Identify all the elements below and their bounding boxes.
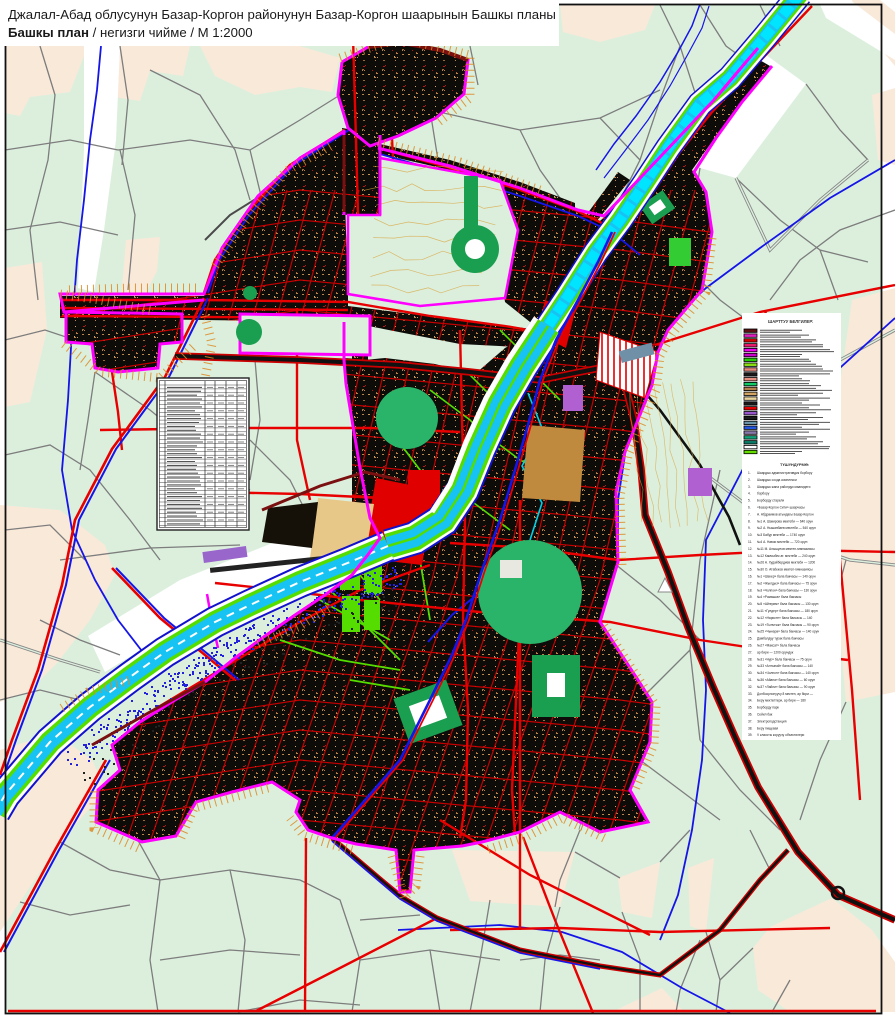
- svg-text:№1 «Шекер» бала бакчасы — 140: №1 «Шекер» бала бакчасы — 140 орун: [757, 575, 816, 579]
- svg-text:№19 «Тынчтык» бала бакчасы — 9: №19 «Тынчтык» бала бакчасы — 90 орун: [757, 623, 819, 627]
- svg-text:1.: 1.: [748, 471, 751, 475]
- svg-text:30.: 30.: [748, 671, 753, 675]
- svg-text:борбору: борбору: [757, 492, 770, 496]
- svg-text:Беру мектептери, ар бири — 180: Беру мектептери, ар бири — 180: [757, 699, 806, 703]
- svg-text:17.: 17.: [748, 581, 753, 585]
- svg-text:№25 «Чынара» бала бакчасы — 14: №25 «Чынара» бала бакчасы — 140 орун: [757, 630, 819, 634]
- svg-text:№2 «Жылдыз» бала бакчасы — 75: №2 «Жылдыз» бала бакчасы — 75 орун: [757, 581, 817, 585]
- svg-text:Шаардык административдик борбо: Шаардык административдик борбору: [757, 471, 813, 475]
- svg-text:№12 «Наристе» бала бакчасы — 1: №12 «Наристе» бала бакчасы — 140: [757, 616, 812, 620]
- svg-text:ар бири — 1200 орундук: ар бири — 1200 орундук: [757, 650, 794, 654]
- svg-text:34.: 34.: [748, 699, 753, 703]
- svg-text:33.: 33.: [748, 692, 753, 696]
- svg-text:ШАРТТУУ БЕЛГИЛЕР:: ШАРТТУУ БЕЛГИЛЕР:: [768, 319, 813, 324]
- svg-text:25.: 25.: [748, 637, 753, 641]
- svg-text:Шаардык жана райондук маанидег: Шаардык жана райондук маанидеги: [757, 485, 811, 489]
- svg-text:12.: 12.: [748, 547, 753, 551]
- svg-text:6.: 6.: [748, 506, 751, 510]
- svg-text:10.: 10.: [748, 533, 753, 537]
- svg-text:№1 А. Шакирова мектеби — 640 о: №1 А. Шакирова мектеби — 640 орун: [757, 519, 813, 523]
- svg-text:2.: 2.: [748, 478, 751, 482]
- svg-text:26.: 26.: [748, 644, 753, 648]
- svg-text:16.: 16.: [748, 575, 753, 579]
- svg-text:29.: 29.: [748, 664, 753, 668]
- svg-text:№27 «Максат» бала бакчасы: №27 «Максат» бала бакчасы: [757, 644, 801, 648]
- svg-text:3.: 3.: [748, 485, 751, 489]
- svg-text:36.: 36.: [748, 713, 753, 717]
- svg-text:Джалал-Абад облусунун Базар-Ко: Джалал-Абад облусунун Базар-Коргон район…: [8, 7, 556, 22]
- svg-text:31.: 31.: [748, 678, 753, 682]
- svg-text:11.: 11.: [748, 540, 752, 544]
- svg-text:32.: 32.: [748, 685, 753, 689]
- svg-text:№30 О. Атабеков мектеп-гимнази: №30 О. Атабеков мектеп-гимназиясы: [757, 568, 813, 572]
- svg-text:№4 «Ромашка» бала бакчасы: №4 «Ромашка» бала бакчасы: [757, 595, 802, 599]
- svg-text:№31 «Нур» бала бакчасы — 75 ор: №31 «Нур» бала бакчасы — 75 орун: [757, 657, 812, 661]
- svg-text:№2 А. Нышанбаев мектеби — 540: №2 А. Нышанбаев мектеби — 540 орун: [757, 526, 816, 530]
- svg-text:37.: 37.: [748, 719, 753, 723]
- svg-text:28.: 28.: [748, 657, 753, 661]
- svg-text:7.: 7.: [748, 512, 751, 516]
- svg-text:№36 «Айана» бала бакчасы — 60: №36 «Айана» бала бакчасы — 60 орун: [757, 678, 815, 682]
- svg-text:№3 Бабур мектеби — 1740 орун: №3 Бабур мектеби — 1740 орун: [757, 533, 805, 537]
- svg-text:А. Абдраимов атындагы Базар-Ко: А. Абдраимов атындагы Базар-Коргон: [757, 512, 814, 516]
- svg-text:Борборду старели: Борборду старели: [757, 499, 784, 503]
- svg-text:№37 «Лайли» бала бакчасы — 90: №37 «Лайли» бала бакчасы — 90 орун: [757, 685, 815, 689]
- svg-text:5.: 5.: [748, 499, 751, 503]
- svg-text:Долбоорлонуучу 8 мектеп, ар би: Долбоорлонуучу 8 мектеп, ар бири —: [757, 692, 814, 696]
- svg-text:4.: 4.: [748, 492, 751, 496]
- svg-text:8.: 8.: [748, 519, 751, 523]
- svg-text:№5 «Айгерим» бала бакчасы — 13: №5 «Айгерим» бала бакчасы — 130 орун: [757, 602, 819, 606]
- svg-text:ТҮШҮНДҮРМӨ:: ТҮШҮНДҮРМӨ:: [780, 462, 809, 467]
- svg-text:20.: 20.: [748, 602, 753, 606]
- svg-text:Беру пищевая: Беру пищевая: [757, 726, 778, 730]
- svg-text:№34 «Чолпон» бала бакчасы — 14: №34 «Чолпон» бала бакчасы — 140 орун: [757, 671, 819, 675]
- svg-text:№11 «Гулдер» бала бакчасы — 18: №11 «Гулдер» бала бакчасы — 180 орун: [757, 609, 818, 613]
- svg-text:Борборду парк: Борборду парк: [757, 706, 780, 710]
- svg-text:Шаардык соода комплекси: Шаардык соода комплекси: [757, 478, 797, 482]
- svg-text:№26 А. Худайбердиев мектеби —: №26 А. Худайбердиев мектеби — 1200: [757, 561, 815, 565]
- svg-text:Дамбалдуу турак бала бакчасы: Дамбалдуу турак бала бакчасы: [757, 637, 804, 641]
- svg-text:21.: 21.: [748, 609, 753, 613]
- svg-text:Электроподстанция: Электроподстанция: [757, 719, 787, 723]
- svg-text:Сейил бак: Сейил бак: [757, 713, 773, 717]
- svg-text:27.: 27.: [748, 650, 753, 654]
- svg-text:№33 «Алтынай» бала бакчасы — 1: №33 «Алтынай» бала бакчасы — 140: [757, 664, 813, 668]
- svg-text:«Базар-Коргон Сити» шаарчасы: «Базар-Коргон Сити» шаарчасы: [757, 506, 805, 510]
- svg-text:14.: 14.: [748, 561, 753, 565]
- svg-text:15.: 15.: [748, 568, 753, 572]
- svg-text:9.: 9.: [748, 526, 751, 530]
- svg-text:23.: 23.: [748, 623, 753, 627]
- svg-text:Башкы план / негизги чийме / М: Башкы план / негизги чийме / М 1:2000: [8, 25, 253, 40]
- svg-text:22.: 22.: [748, 616, 753, 620]
- svg-text:35.: 35.: [748, 706, 753, 710]
- svg-text:№4 А. Навои мектеби — 720 орун: №4 А. Навои мектеби — 720 орун: [757, 540, 808, 544]
- svg-text:39.: 39.: [748, 733, 753, 737]
- svg-text:19.: 19.: [748, 595, 753, 599]
- svg-text:№12 Камчыбек ат. мектеби — 240: №12 Камчыбек ат. мектеби — 240 орун: [757, 554, 815, 558]
- svg-text:№11 М. Алышулов мектеп-гимнази: №11 М. Алышулов мектеп-гимназиясы: [757, 547, 815, 551]
- svg-text:№3 «Чолпон» бала бакчасы — 130: №3 «Чолпон» бала бакчасы — 130 орун: [757, 588, 817, 592]
- svg-text:V классты коруучу объектилери: V классты коруучу объектилери: [757, 733, 804, 737]
- svg-text:18.: 18.: [748, 588, 753, 592]
- svg-text:24.: 24.: [748, 630, 753, 634]
- svg-text:38.: 38.: [748, 726, 753, 730]
- svg-text:13.: 13.: [748, 554, 753, 558]
